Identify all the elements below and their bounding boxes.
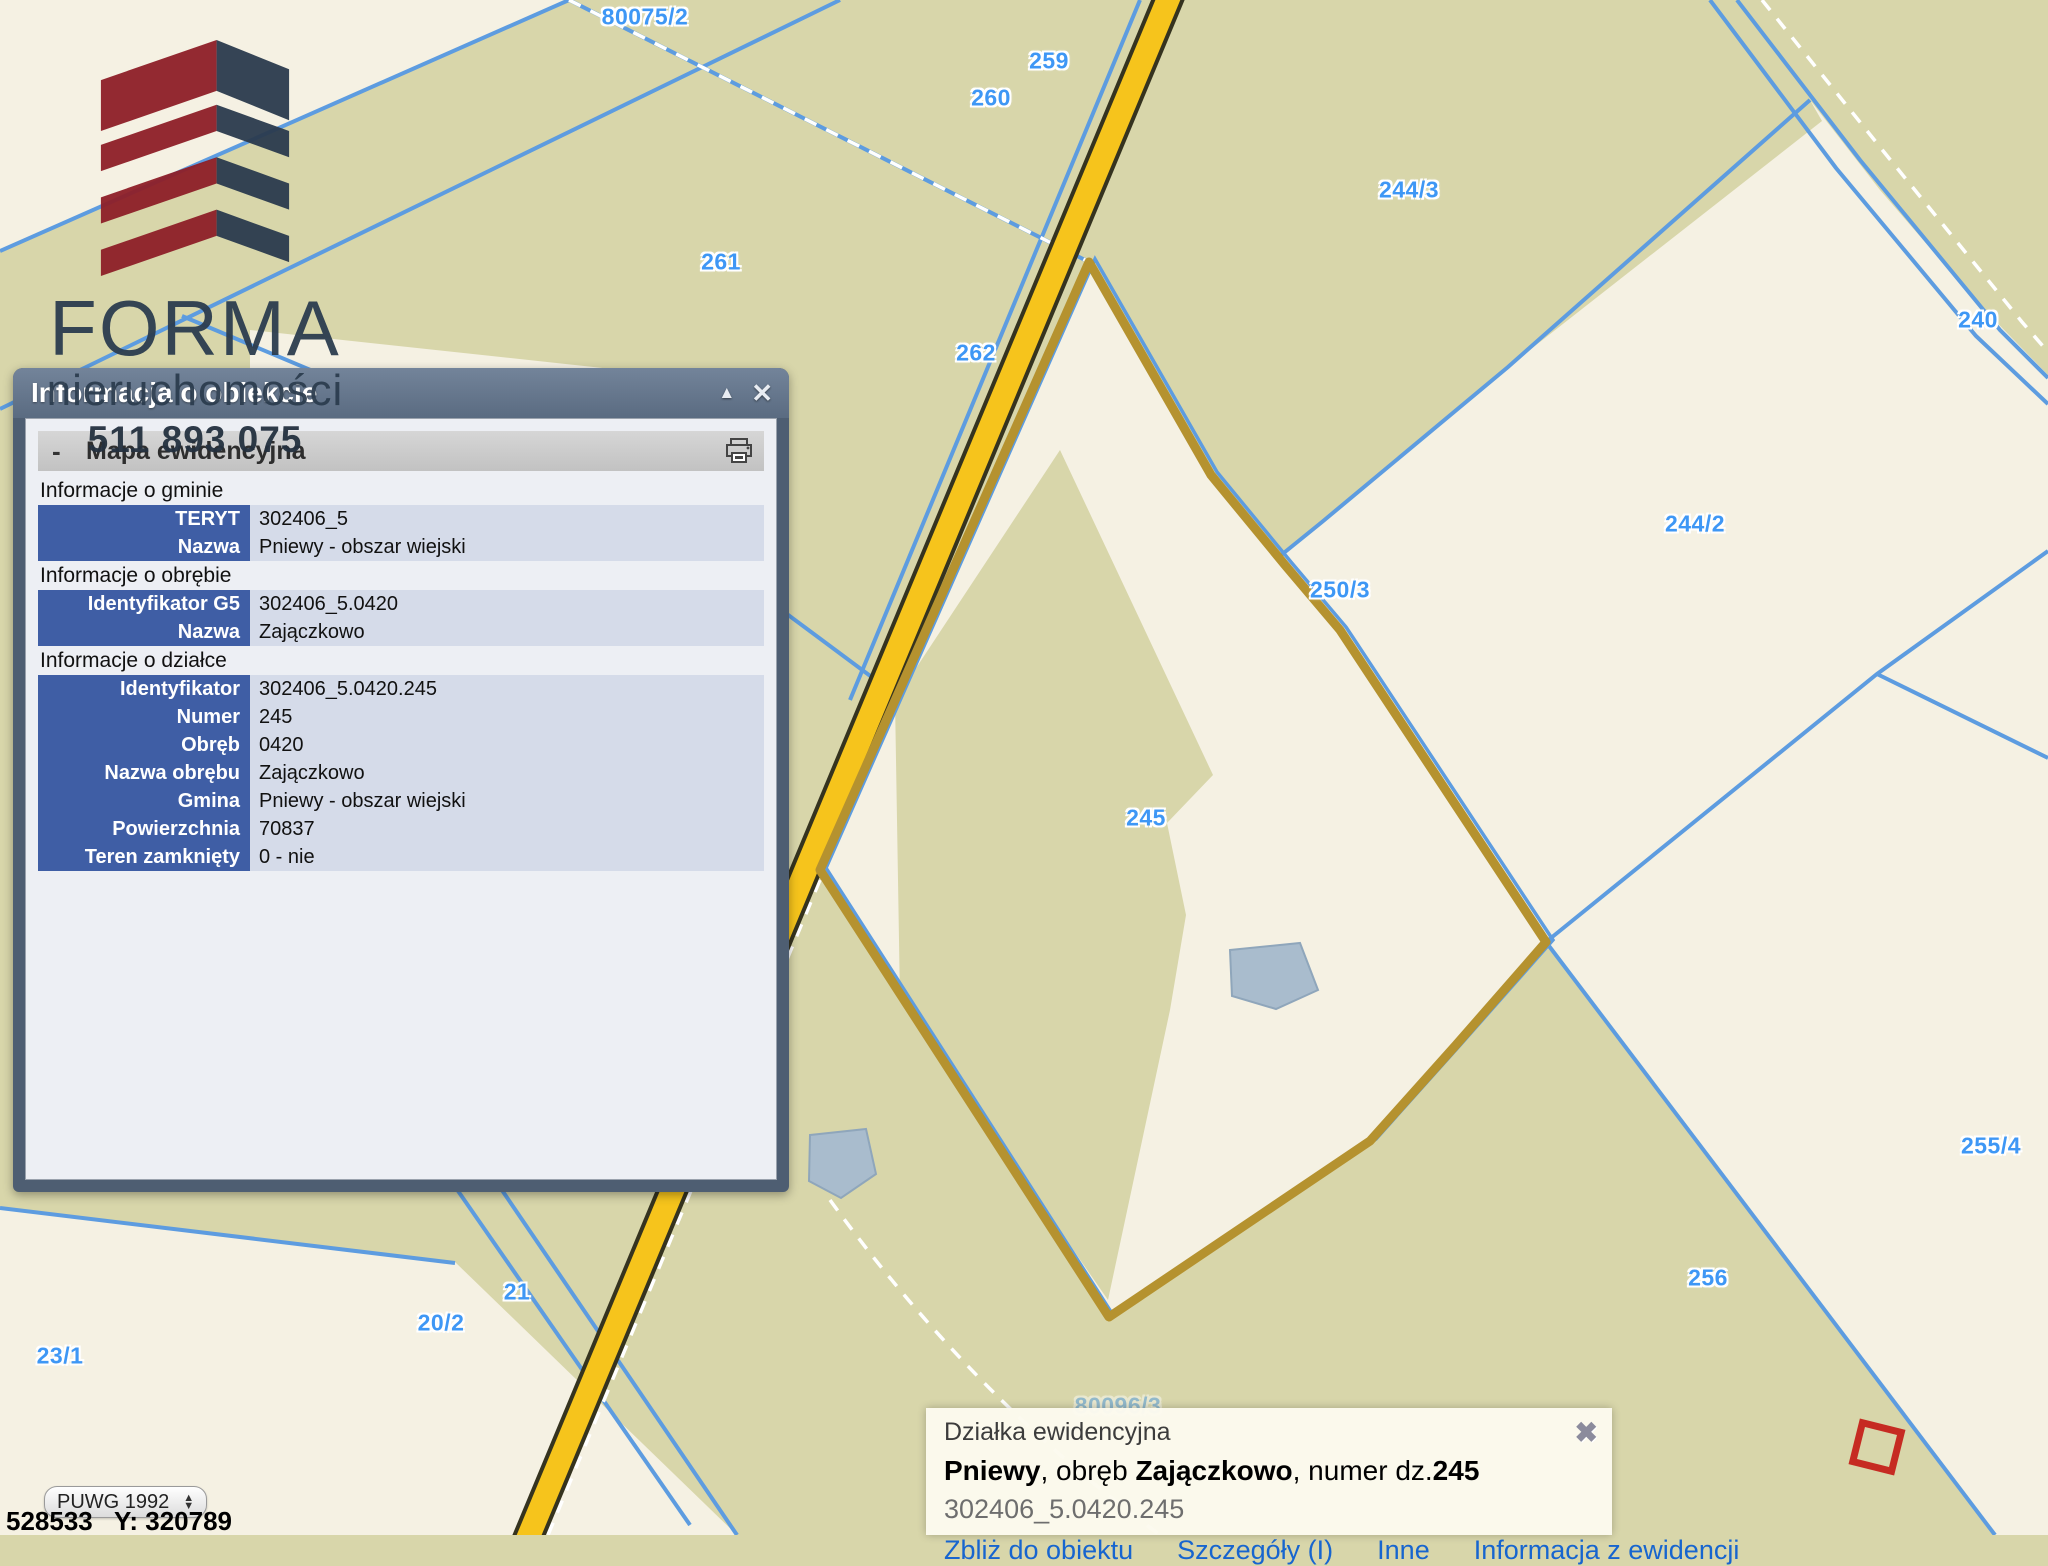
parcel-label: 259: [1029, 48, 1069, 75]
row-value: 70837: [250, 815, 764, 843]
row-label: Nazwa: [38, 618, 250, 646]
parcel-label: 262: [956, 340, 996, 367]
popup-numer: 245: [1433, 1455, 1480, 1486]
row-label: Powierzchnia: [38, 815, 250, 843]
table-row: Nazwa Pniewy - obszar wiejski: [38, 533, 764, 561]
parcel-label: 260: [971, 85, 1011, 112]
row-value: 302406_5.0420: [250, 590, 764, 618]
details-link[interactable]: Szczegóły (I): [1177, 1535, 1333, 1566]
row-label: TERYT: [38, 505, 250, 533]
popup-obreb: Zajączkowo: [1135, 1455, 1292, 1486]
row-value: Zajączkowo: [250, 759, 764, 787]
table-row: Powierzchnia 70837: [38, 815, 764, 843]
row-value: Pniewy - obszar wiejski: [250, 787, 764, 815]
parcel-label: 240: [1958, 307, 1998, 334]
parcel-label: 80075/2: [602, 4, 689, 31]
table-row: Nazwa obrębu Zajączkowo: [38, 759, 764, 787]
minimize-icon[interactable]: ▲: [718, 383, 735, 403]
row-label: Numer: [38, 703, 250, 731]
parcel-label: 250/3: [1310, 577, 1370, 604]
group-heading: Informacje o obrębie: [40, 564, 764, 588]
row-label: Nazwa: [38, 533, 250, 561]
section-header[interactable]: - Mapa ewidencyjna: [38, 431, 764, 471]
parcel-label: 23/1: [37, 1343, 84, 1370]
row-label: Obręb: [38, 731, 250, 759]
row-label: Teren zamknięty: [38, 843, 250, 871]
object-info-panel: Informacja o obiekcie ▲ ✕ - Mapa ewidenc…: [13, 368, 789, 1192]
print-icon[interactable]: [724, 437, 754, 465]
table-row: Gmina Pniewy - obszar wiejski: [38, 787, 764, 815]
feature-popup: ✖ Działka ewidencyjna Pniewy, obręb Zają…: [926, 1408, 1612, 1535]
parcel-label: 244/3: [1379, 177, 1439, 204]
parcel-label: 20/2: [418, 1310, 465, 1337]
row-value: 302406_5: [250, 505, 764, 533]
parcel-label: 261: [701, 249, 741, 276]
section-title: Mapa ewidencyjna: [86, 437, 724, 466]
table-row: Identyfikator G5 302406_5.0420: [38, 590, 764, 618]
panel-titlebar[interactable]: Informacja o obiekcie ▲ ✕: [13, 368, 789, 418]
table-row: Numer 245: [38, 703, 764, 731]
popup-links: Zbliż do obiektu Szczegóły (I) Inne Info…: [944, 1535, 1598, 1566]
row-value: 0420: [250, 731, 764, 759]
popup-close-icon[interactable]: ✖: [1575, 1416, 1598, 1449]
parcel-label: 245: [1126, 805, 1166, 832]
row-label: Identyfikator G5: [38, 590, 250, 618]
group-heading: Informacje o działce: [40, 649, 764, 673]
table-row: TERYT 302406_5: [38, 505, 764, 533]
panel-body: - Mapa ewidencyjna Informacje o gminie T…: [25, 418, 777, 1180]
parcel-label: 21: [504, 1279, 531, 1306]
row-value: 302406_5.0420.245: [250, 675, 764, 703]
row-label: Gmina: [38, 787, 250, 815]
popup-parcel-title: Pniewy, obręb Zajączkowo, numer dz.245: [944, 1455, 1598, 1487]
row-label: Identyfikator: [38, 675, 250, 703]
popup-sep1: , obręb: [1040, 1455, 1135, 1486]
popup-header: Działka ewidencyjna: [944, 1418, 1598, 1447]
row-label: Nazwa obrębu: [38, 759, 250, 787]
popup-gmina: Pniewy: [944, 1455, 1040, 1486]
collapse-icon[interactable]: -: [52, 436, 86, 467]
table-row: Identyfikator 302406_5.0420.245: [38, 675, 764, 703]
table-row: Obręb 0420: [38, 731, 764, 759]
other-link[interactable]: Inne: [1377, 1535, 1430, 1566]
zoom-to-object-link[interactable]: Zbliż do obiektu: [944, 1535, 1133, 1566]
cursor-coordinates: 528533 Y: 320789: [6, 1506, 232, 1537]
parcel-label: 256: [1688, 1265, 1728, 1292]
row-value: 245: [250, 703, 764, 731]
table-row: Teren zamknięty 0 - nie: [38, 843, 764, 871]
table-row: Nazwa Zajączkowo: [38, 618, 764, 646]
parcel-label: 255/4: [1961, 1133, 2021, 1160]
registry-info-link[interactable]: Informacja z ewidencji: [1474, 1535, 1740, 1566]
close-icon[interactable]: ✕: [751, 378, 773, 409]
row-value: 0 - nie: [250, 843, 764, 871]
row-value: Pniewy - obszar wiejski: [250, 533, 764, 561]
row-value: Zajączkowo: [250, 618, 764, 646]
group-heading: Informacje o gminie: [40, 479, 764, 503]
panel-title: Informacja o obiekcie: [31, 377, 718, 409]
popup-sep2: , numer dz.: [1293, 1455, 1433, 1486]
parcel-label: 244/2: [1665, 511, 1725, 538]
popup-parcel-id: 302406_5.0420.245: [944, 1494, 1598, 1525]
